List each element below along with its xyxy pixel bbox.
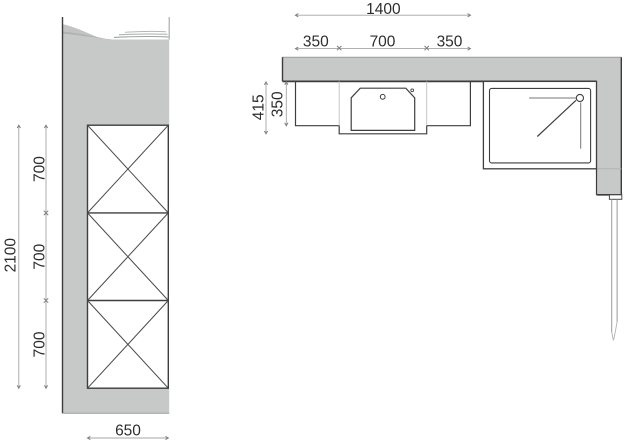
svg-text:350: 350 — [303, 34, 329, 51]
svg-text:650: 650 — [115, 423, 141, 440]
svg-text:350: 350 — [437, 34, 463, 51]
svg-text:350: 350 — [270, 91, 287, 117]
svg-text:1400: 1400 — [366, 1, 401, 18]
svg-text:700: 700 — [32, 243, 49, 269]
svg-text:2100: 2100 — [3, 238, 20, 273]
svg-text:700: 700 — [32, 331, 49, 357]
svg-text:700: 700 — [32, 156, 49, 182]
svg-text:415: 415 — [251, 94, 268, 120]
svg-text:700: 700 — [370, 34, 396, 51]
